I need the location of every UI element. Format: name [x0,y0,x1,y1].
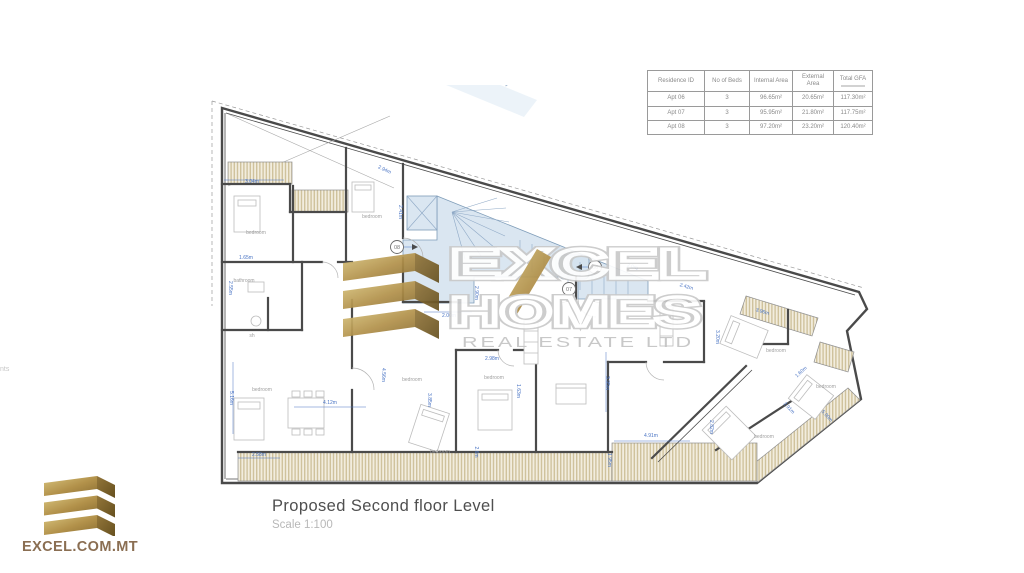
page-title: Proposed Second floor Level [272,497,495,516]
svg-text:sh: sh [249,333,255,339]
table-cell: 21.80m² [793,106,834,120]
watermark-subtitle: REAL ESTATE LTD [462,335,694,351]
table-row: Apt 07395.95m²21.80m²117.75m² [648,106,873,120]
svg-text:3.85m: 3.85m [426,393,432,407]
svg-text:bedroom: bedroom [816,384,836,390]
watermark-logo-icon [343,253,439,339]
table-cell: 3 [705,106,750,120]
svg-text:2.6m: 2.6m [473,446,479,457]
svg-text:bedroom: bedroom [484,375,504,381]
table-cell: Apt 07 [648,106,705,120]
table-header-cell: Total GFA [834,71,873,92]
page: bedroombedroombathroomshbedroombedroombe… [0,0,1024,573]
svg-text:bedroom: bedroom [362,214,382,220]
edge-text-fragment: nts [0,366,9,373]
watermark-word-2: HOMES [450,288,700,335]
footer-logo-text: EXCEL.COM.MT [14,539,146,555]
svg-text:3.95m: 3.95m [604,376,610,390]
table-cell: Apt 08 [648,120,705,134]
svg-text:4.91m: 4.91m [644,433,658,439]
floor-plan-drawing: bedroombedroombathroomshbedroombedroombe… [190,85,890,495]
svg-text:bedroom: bedroom [430,449,450,455]
watermark-word-1: EXCEL [450,240,705,287]
svg-text:3.20m: 3.20m [714,330,720,344]
svg-text:bedroom: bedroom [252,387,272,393]
svg-text:1.65m: 1.65m [239,255,253,261]
table-cell: 97.20m² [750,120,793,134]
table-header-row: Residence IDNo of BedsInternal AreaExter… [648,71,873,92]
table-cell: Apt 06 [648,92,705,106]
svg-text:2.98m: 2.98m [485,356,499,362]
svg-text:4.12m: 4.12m [323,400,337,406]
table-header-cell: Residence ID [648,71,705,92]
svg-text:2.82m: 2.82m [708,420,714,434]
table-header-cell: No of Beds [705,71,750,92]
svg-text:4.56m: 4.56m [380,368,386,382]
table-cell: 23.20m² [793,120,834,134]
title-block: Proposed Second floor Level Scale 1:100 [272,497,495,531]
table-header-cell: Internal Area [750,71,793,92]
residence-table: Residence IDNo of BedsInternal AreaExter… [647,70,873,135]
residence-table-container: Residence IDNo of BedsInternal AreaExter… [647,70,873,135]
table-cell: 117.30m² [834,92,873,106]
plan-scale: Scale 1:100 [272,519,495,531]
svg-text:bedroom: bedroom [754,434,774,440]
svg-text:08: 08 [394,245,400,251]
footer-logo: EXCEL.COM.MT [14,476,146,555]
svg-text:2.58m: 2.58m [252,452,266,458]
svg-text:2.41m: 2.41m [397,205,403,219]
table-row: Apt 06396.65m²20.65m²117.30m² [648,92,873,106]
table-header-cell: External Area [793,71,834,92]
residence-table-body: Apt 06396.65m²20.65m²117.30m²Apt 07395.9… [648,92,873,135]
table-cell: 120.40m² [834,120,873,134]
svg-text:5.16m: 5.16m [228,391,234,405]
table-cell: 3 [705,120,750,134]
svg-text:2.55m: 2.55m [227,281,233,295]
svg-text:1.63m: 1.63m [515,384,521,398]
footer-logo-icon [44,476,116,536]
table-cell: 3 [705,92,750,106]
svg-text:1.95m: 1.95m [606,453,612,467]
table-cell: 20.65m² [793,92,834,106]
svg-text:bedroom: bedroom [766,348,786,354]
table-row: Apt 08397.20m²23.20m²120.40m² [648,120,873,134]
table-cell: 95.95m² [750,106,793,120]
table-cell: 96.65m² [750,92,793,106]
table-cell: 117.75m² [834,106,873,120]
svg-text:bathroom: bathroom [233,278,254,284]
svg-text:bedroom: bedroom [246,230,266,236]
svg-text:bedroom: bedroom [402,377,422,383]
upper-stair [434,85,537,117]
svg-text:3.04m: 3.04m [245,179,259,185]
